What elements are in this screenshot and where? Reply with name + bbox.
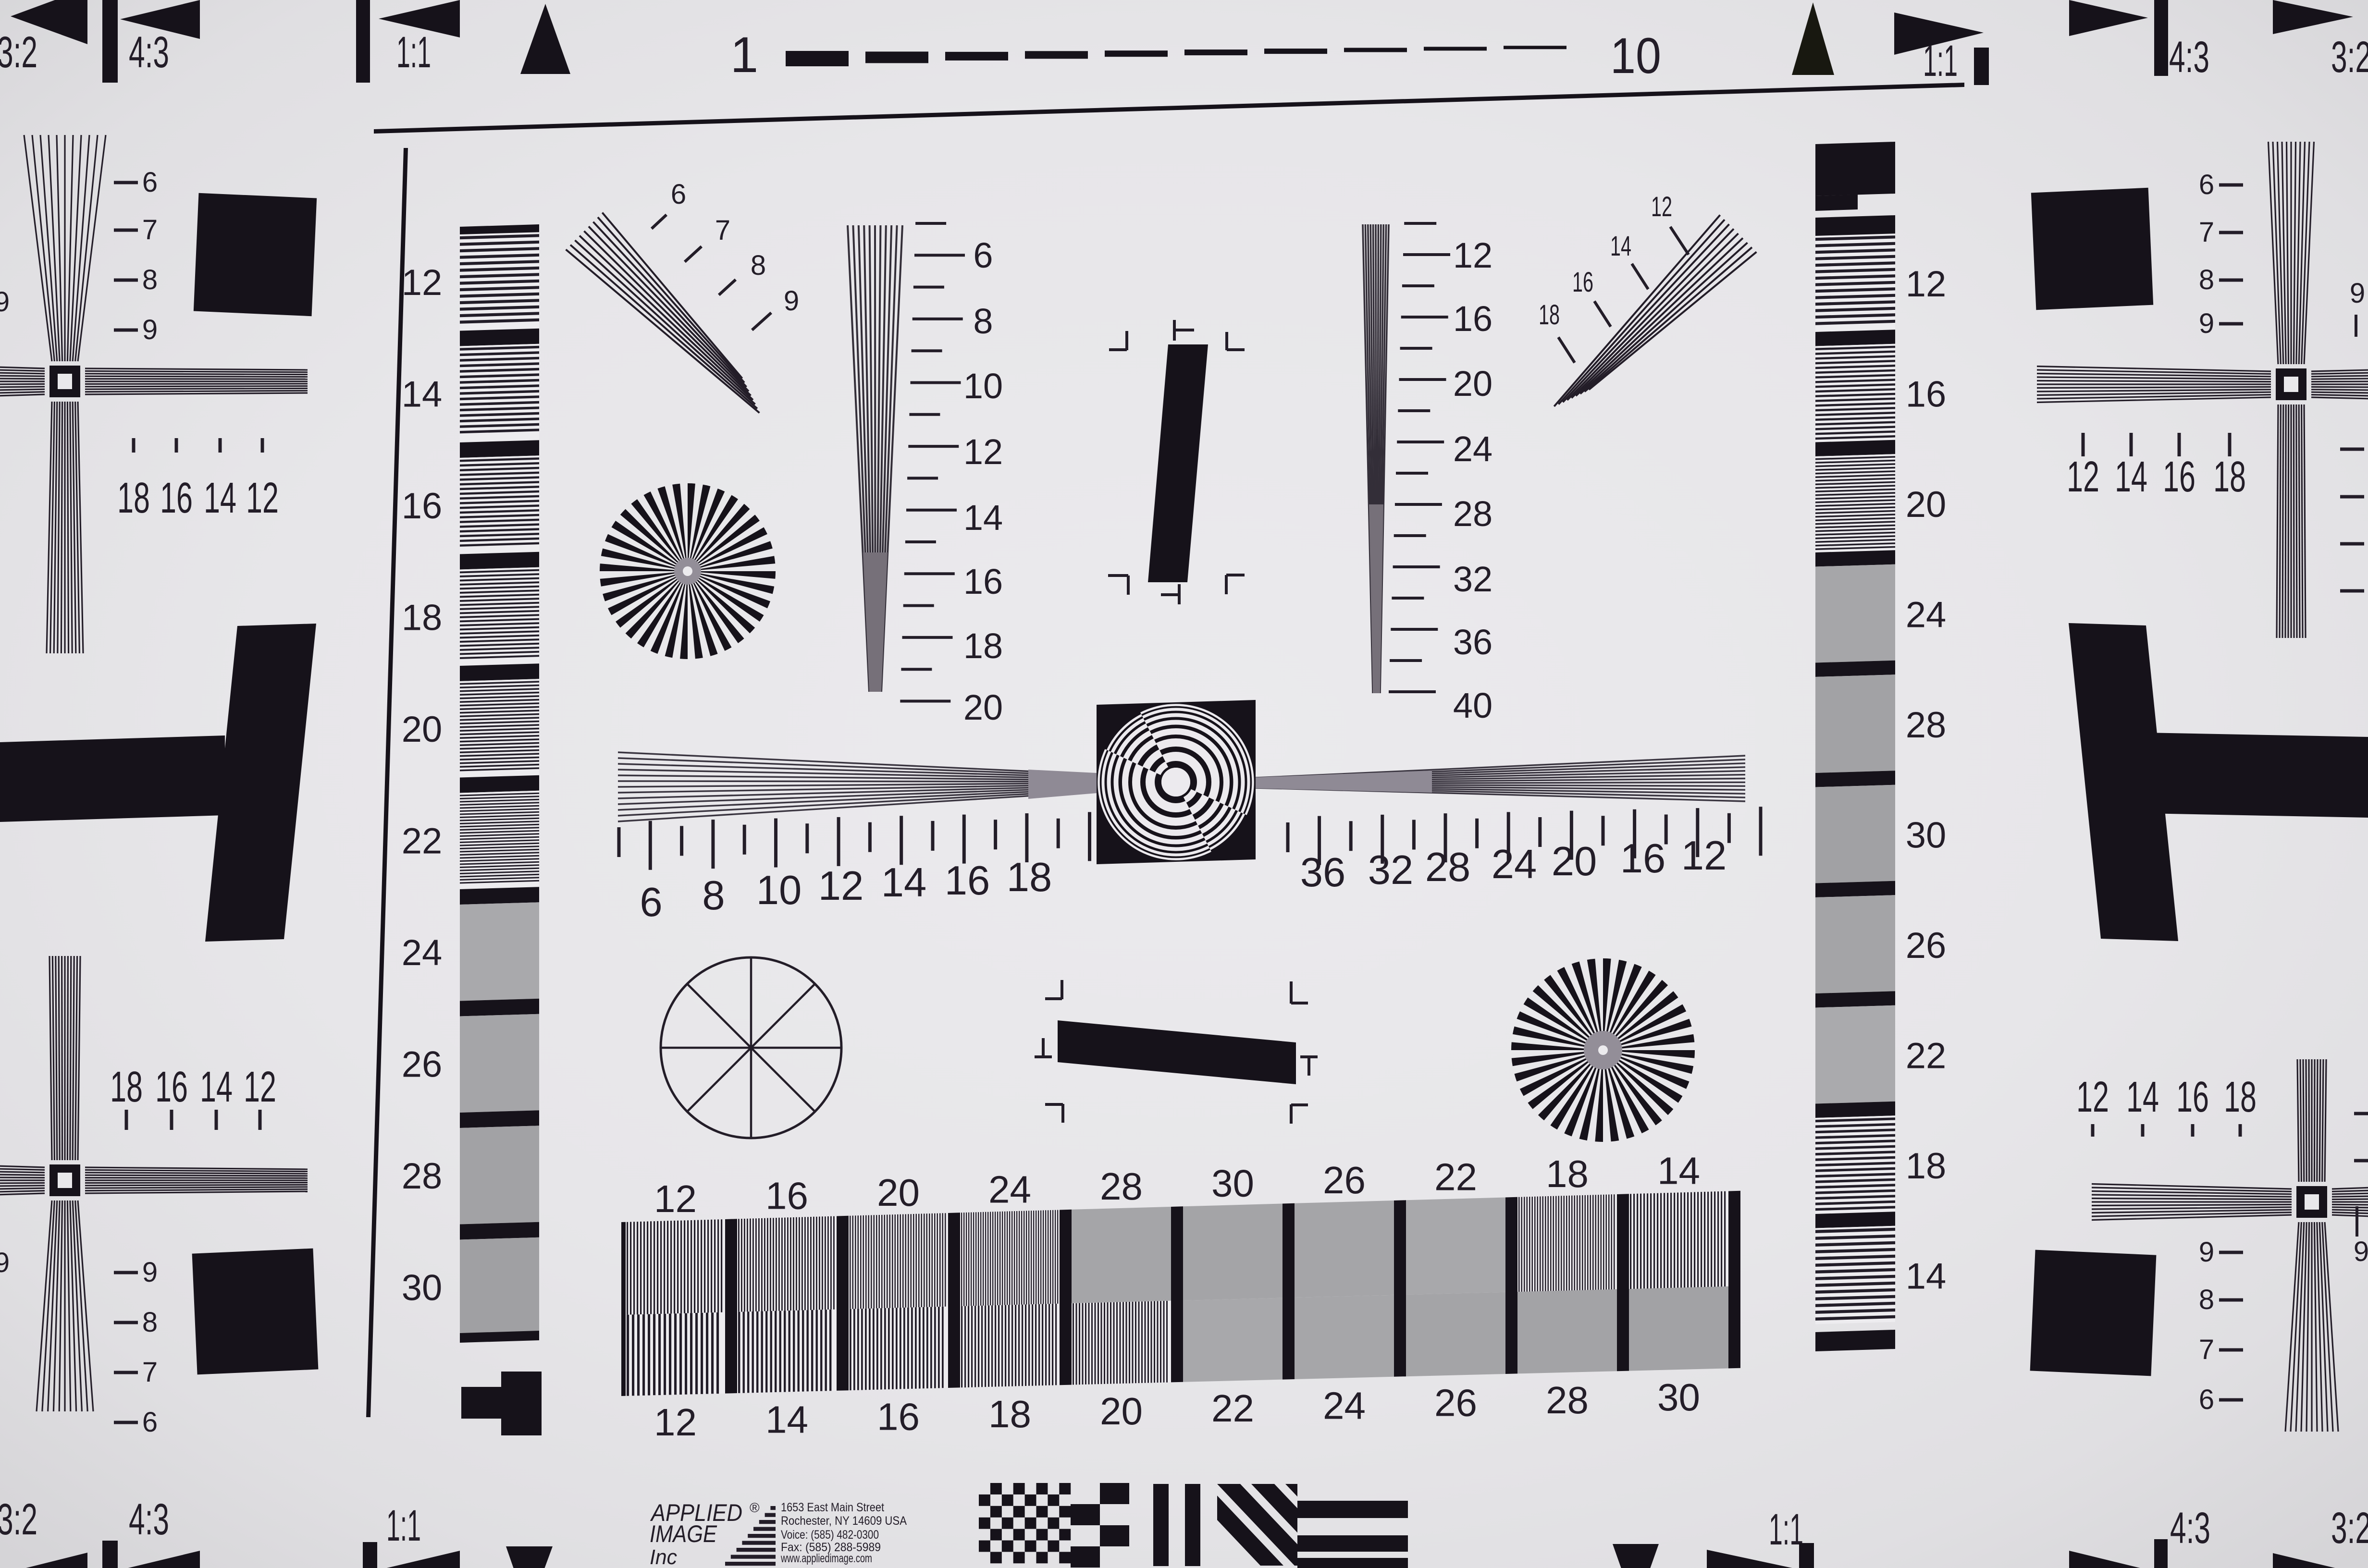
svg-text:8: 8 (751, 250, 766, 281)
svg-text:8: 8 (142, 1307, 158, 1338)
svg-text:6: 6 (142, 167, 158, 198)
svg-text:12: 12 (654, 1401, 697, 1444)
svg-text:18: 18 (110, 1063, 143, 1111)
svg-text:22: 22 (402, 821, 443, 862)
svg-text:6: 6 (2199, 169, 2214, 200)
svg-text:4:3: 4:3 (129, 1495, 169, 1544)
svg-text:14: 14 (963, 498, 1003, 538)
svg-text:26: 26 (1323, 1159, 1366, 1201)
svg-text:1653 East Main Street: 1653 East Main Street (781, 1501, 884, 1514)
svg-text:Rochester, NY 14609 USA: Rochester, NY 14609 USA (781, 1514, 907, 1528)
svg-text:36: 36 (1453, 622, 1492, 662)
svg-text:1: 1 (730, 27, 758, 83)
svg-text:18: 18 (1007, 855, 1052, 900)
svg-text:22: 22 (1211, 1387, 1254, 1430)
svg-text:®: ® (750, 1500, 760, 1515)
svg-text:14: 14 (1610, 231, 1631, 262)
svg-text:6: 6 (640, 880, 662, 925)
svg-text:4:3: 4:3 (2169, 33, 2209, 82)
svg-text:28: 28 (1906, 705, 1947, 746)
svg-text:12: 12 (963, 432, 1003, 472)
svg-text:28: 28 (1546, 1379, 1589, 1421)
svg-text:9: 9 (142, 1257, 158, 1288)
svg-text:9: 9 (142, 314, 158, 345)
svg-text:12: 12 (402, 262, 443, 303)
svg-text:9: 9 (2354, 1236, 2368, 1267)
svg-text:20: 20 (402, 709, 443, 750)
svg-text:8: 8 (2199, 1284, 2214, 1315)
svg-text:9: 9 (2199, 308, 2214, 339)
svg-text:12: 12 (1681, 833, 1727, 879)
svg-text:24: 24 (988, 1168, 1031, 1211)
svg-text:8: 8 (142, 264, 158, 295)
svg-text:28: 28 (1100, 1165, 1143, 1208)
svg-text:10: 10 (1610, 28, 1661, 84)
svg-text:3:2: 3:2 (2331, 1504, 2368, 1553)
svg-text:12: 12 (244, 1063, 276, 1111)
svg-text:7: 7 (142, 1357, 158, 1388)
svg-text:Voice: (585) 482-0300: Voice: (585) 482-0300 (781, 1528, 879, 1542)
svg-text:30: 30 (1657, 1376, 1700, 1419)
svg-text:9: 9 (784, 285, 799, 317)
svg-text:16: 16 (1572, 267, 1593, 298)
svg-text:www.appliedimage.com: www.appliedimage.com (780, 1552, 872, 1565)
svg-text:7: 7 (2199, 217, 2214, 248)
svg-text:20: 20 (1552, 839, 1597, 884)
svg-text:30: 30 (402, 1268, 443, 1309)
svg-text:28: 28 (402, 1156, 443, 1197)
svg-text:14: 14 (200, 1063, 233, 1111)
svg-text:8: 8 (973, 301, 993, 341)
svg-text:16: 16 (1620, 836, 1666, 882)
svg-text:14: 14 (402, 374, 443, 415)
svg-text:Inc: Inc (650, 1545, 677, 1568)
svg-text:16: 16 (1453, 299, 1492, 339)
svg-text:6: 6 (2199, 1384, 2214, 1415)
svg-text:22: 22 (1906, 1036, 1947, 1077)
svg-text:20: 20 (1906, 484, 1947, 525)
svg-text:12: 12 (246, 474, 279, 522)
svg-text:7: 7 (715, 215, 730, 246)
svg-text:14: 14 (204, 474, 236, 522)
svg-text:18: 18 (1546, 1152, 1589, 1195)
svg-text:6: 6 (142, 1407, 158, 1438)
svg-text:3:2: 3:2 (2331, 33, 2368, 82)
svg-text:16: 16 (402, 486, 443, 527)
svg-text:24: 24 (402, 932, 443, 973)
svg-text:3:2: 3:2 (0, 1495, 37, 1544)
svg-text:36: 36 (1300, 850, 1346, 895)
svg-text:32: 32 (1368, 847, 1414, 893)
svg-text:14: 14 (881, 860, 927, 906)
svg-text:14: 14 (2115, 453, 2147, 501)
svg-text:10: 10 (963, 366, 1003, 406)
svg-text:9: 9 (2350, 278, 2365, 309)
svg-text:1:1: 1:1 (1923, 37, 1958, 86)
svg-text:18: 18 (2213, 453, 2246, 501)
svg-text:24: 24 (1492, 842, 1537, 887)
svg-text:14: 14 (765, 1398, 808, 1441)
svg-text:18: 18 (2224, 1073, 2257, 1121)
svg-text:1:1: 1:1 (386, 1501, 421, 1550)
svg-text:10: 10 (756, 868, 802, 913)
svg-text:12: 12 (1651, 191, 1672, 222)
svg-text:14: 14 (1906, 1256, 1947, 1297)
svg-text:4:3: 4:3 (129, 28, 169, 77)
svg-text:16: 16 (2163, 453, 2195, 501)
svg-text:18: 18 (117, 474, 150, 522)
svg-text:18: 18 (1539, 299, 1560, 331)
svg-text:24: 24 (1323, 1384, 1366, 1427)
svg-text:16: 16 (155, 1063, 188, 1111)
svg-text:20: 20 (1100, 1390, 1143, 1433)
svg-text:30: 30 (1906, 815, 1947, 856)
svg-text:12: 12 (1906, 264, 1947, 305)
svg-text:6: 6 (671, 179, 686, 210)
svg-text:12: 12 (654, 1177, 697, 1220)
svg-text:7: 7 (2199, 1334, 2214, 1365)
svg-text:16: 16 (877, 1396, 920, 1438)
svg-text:12: 12 (1453, 235, 1492, 275)
svg-text:14: 14 (2126, 1073, 2159, 1121)
svg-text:16: 16 (160, 474, 193, 522)
svg-text:18: 18 (402, 598, 443, 638)
svg-text:28: 28 (1425, 845, 1471, 890)
svg-text:16: 16 (945, 858, 990, 904)
svg-text:14: 14 (1657, 1149, 1700, 1192)
svg-text:24: 24 (1906, 595, 1947, 636)
svg-text:32: 32 (1453, 559, 1492, 599)
svg-text:6: 6 (973, 235, 993, 275)
svg-text:26: 26 (1906, 925, 1947, 966)
svg-text:12: 12 (2067, 453, 2099, 501)
svg-text:IMAGE: IMAGE (650, 1520, 717, 1547)
svg-text:12: 12 (2076, 1073, 2109, 1121)
svg-text:9: 9 (2199, 1237, 2214, 1268)
svg-text:40: 40 (1453, 686, 1492, 725)
svg-text:16: 16 (1906, 374, 1947, 415)
svg-text:20: 20 (1453, 364, 1492, 404)
svg-text:26: 26 (402, 1044, 443, 1085)
svg-text:30: 30 (1211, 1162, 1254, 1204)
svg-text:20: 20 (963, 687, 1003, 727)
svg-text:1:1: 1:1 (1769, 1505, 1803, 1554)
svg-text:16: 16 (765, 1174, 808, 1217)
svg-text:22: 22 (1434, 1155, 1477, 1198)
svg-text:8: 8 (702, 873, 725, 919)
svg-text:4:3: 4:3 (2170, 1504, 2210, 1553)
svg-text:26: 26 (1434, 1382, 1477, 1424)
svg-text:28: 28 (1453, 494, 1492, 534)
svg-text:12: 12 (818, 863, 864, 909)
svg-text:20: 20 (877, 1171, 920, 1214)
svg-text:3:2: 3:2 (0, 28, 37, 77)
svg-text:16: 16 (963, 562, 1003, 601)
svg-text:18: 18 (1906, 1146, 1947, 1187)
svg-text:1:1: 1:1 (396, 28, 431, 77)
svg-text:24: 24 (1453, 429, 1492, 469)
svg-text:9: 9 (0, 286, 10, 318)
svg-text:9: 9 (0, 1247, 10, 1278)
svg-text:8: 8 (2199, 264, 2214, 295)
svg-text:7: 7 (142, 214, 158, 245)
svg-text:18: 18 (963, 626, 1003, 666)
svg-text:18: 18 (988, 1393, 1031, 1435)
svg-text:16: 16 (2176, 1073, 2209, 1121)
